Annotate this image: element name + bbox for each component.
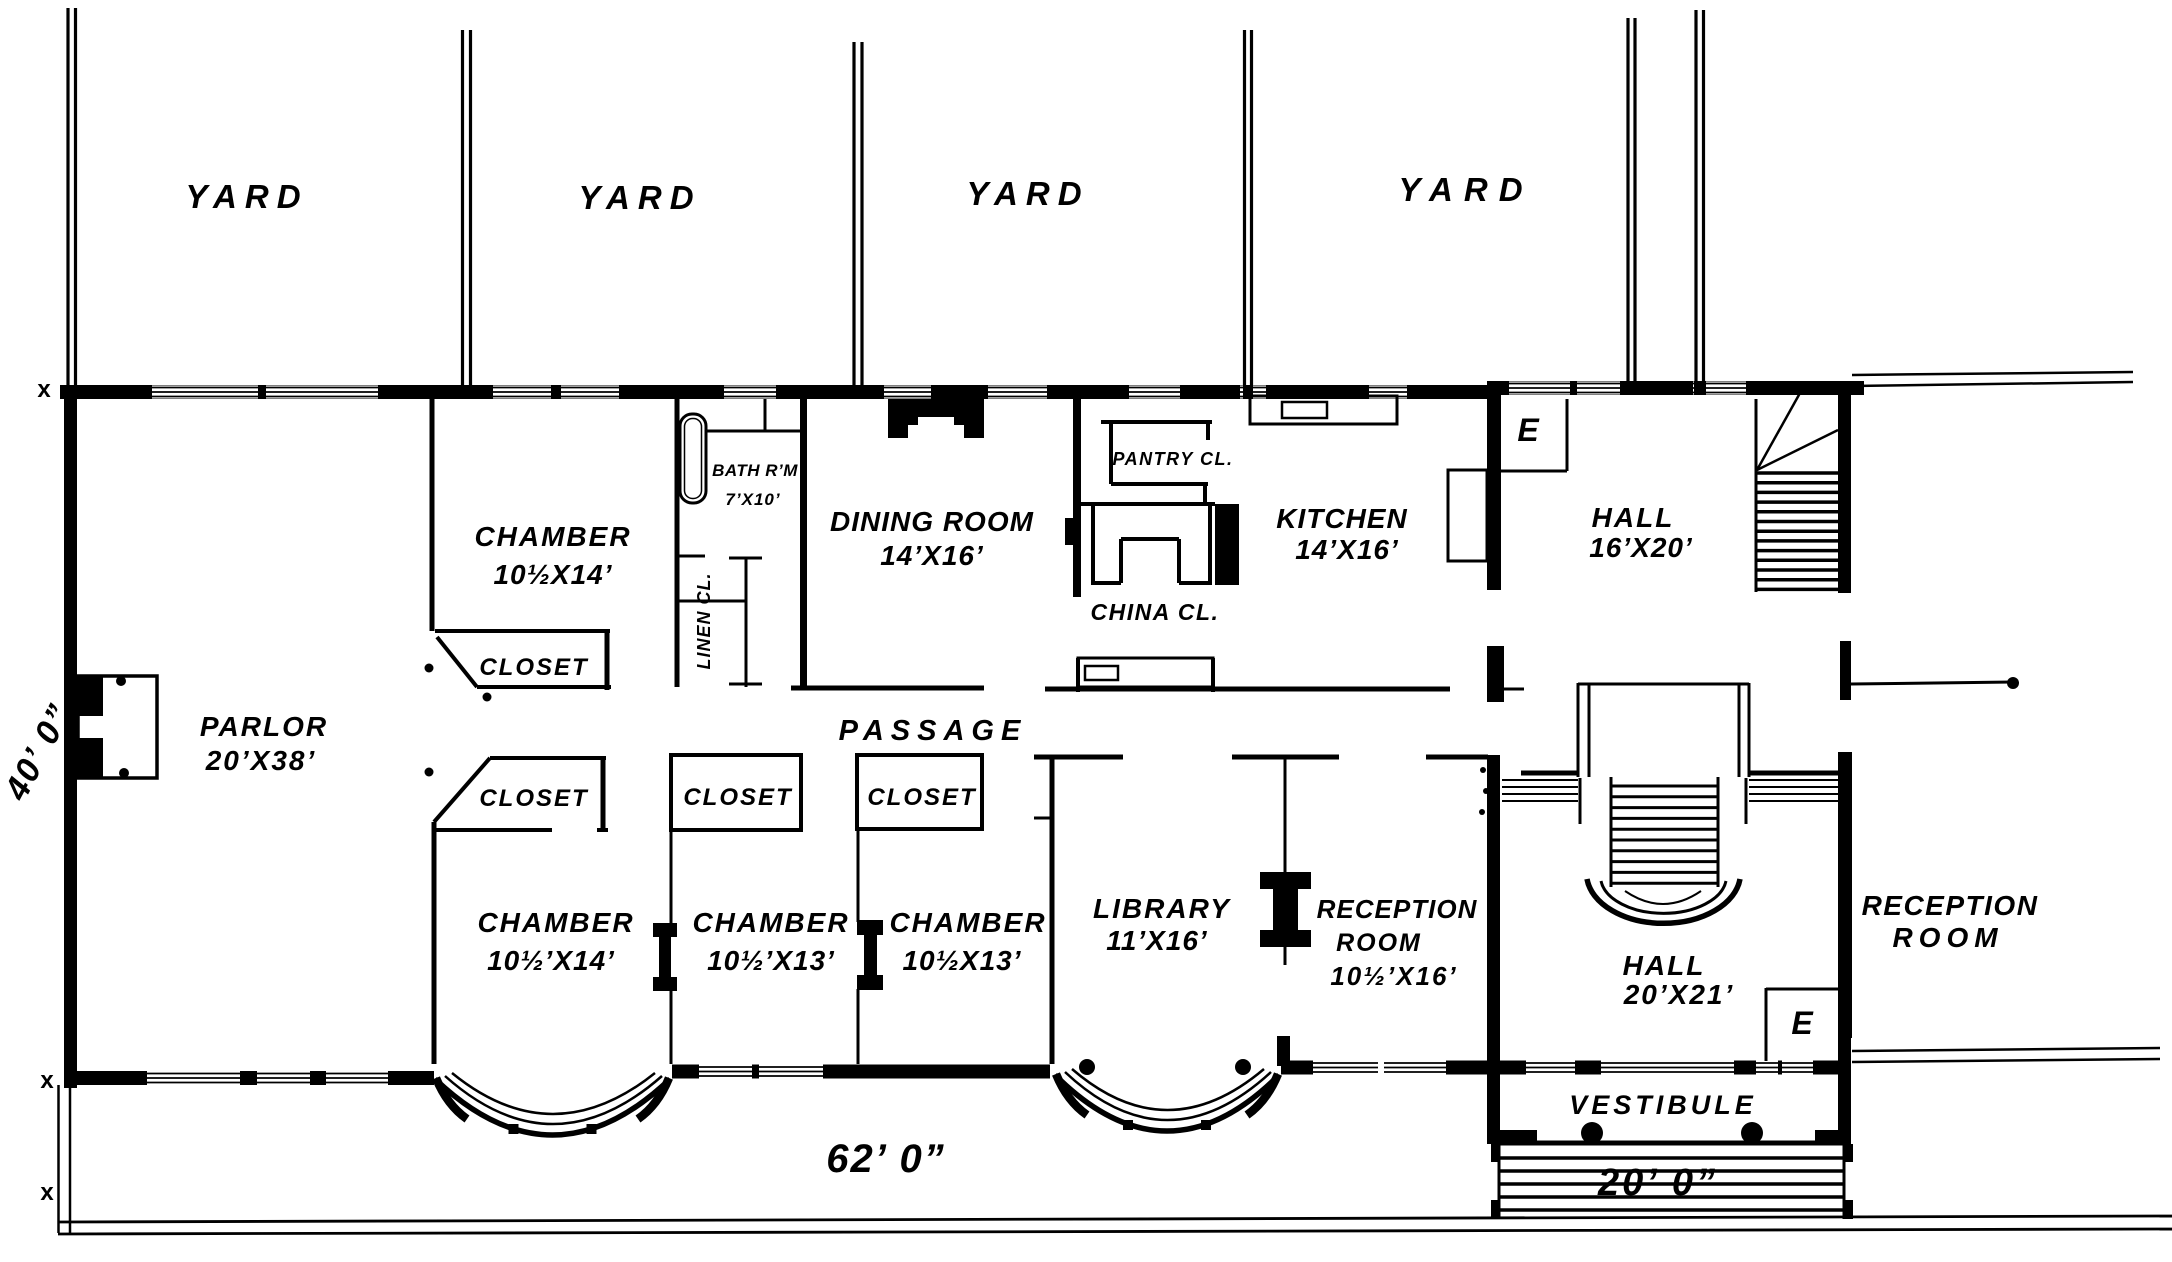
svg-text:10½’X16’: 10½’X16’ — [1330, 961, 1457, 991]
svg-text:YARD: YARD — [578, 179, 701, 216]
svg-text:E: E — [1517, 412, 1540, 448]
svg-text:YARD: YARD — [966, 175, 1089, 212]
svg-text:x: x — [40, 1179, 54, 1206]
svg-text:CHINA CL.: CHINA CL. — [1091, 599, 1220, 625]
svg-text:YARD: YARD — [185, 178, 308, 215]
svg-text:LINEN CL.: LINEN CL. — [694, 573, 714, 670]
svg-text:DINING ROOM: DINING ROOM — [830, 506, 1034, 537]
svg-text:HALL: HALL — [1592, 502, 1675, 533]
svg-text:RECEPTION: RECEPTION — [1317, 894, 1478, 924]
svg-text:CHAMBER: CHAMBER — [692, 907, 849, 938]
svg-text:BATH R’M: BATH R’M — [712, 461, 798, 480]
svg-text:10½’X13’: 10½’X13’ — [707, 945, 835, 976]
svg-text:11’X16’: 11’X16’ — [1106, 925, 1208, 956]
svg-text:LIBRARY: LIBRARY — [1093, 893, 1231, 924]
svg-text:10½X14’: 10½X14’ — [493, 559, 612, 590]
svg-text:PASSAGE: PASSAGE — [839, 715, 1028, 747]
svg-text:CLOSET: CLOSET — [479, 654, 589, 681]
svg-text:KITCHEN: KITCHEN — [1276, 503, 1407, 534]
svg-text:CHAMBER: CHAMBER — [474, 521, 631, 552]
svg-text:CLOSET: CLOSET — [683, 784, 793, 811]
svg-text:62’ 0”: 62’ 0” — [826, 1137, 945, 1181]
svg-text:HALL: HALL — [1623, 950, 1706, 981]
svg-text:20’X38’: 20’X38’ — [205, 745, 317, 776]
svg-text:x: x — [37, 376, 51, 403]
svg-text:RECEPTION: RECEPTION — [1862, 890, 2039, 921]
svg-text:CLOSET: CLOSET — [867, 784, 977, 811]
svg-text:YARD: YARD — [1398, 171, 1533, 208]
svg-text:CHAMBER: CHAMBER — [477, 907, 634, 938]
svg-text:CHAMBER: CHAMBER — [889, 907, 1046, 938]
svg-text:PANTRY CL.: PANTRY CL. — [1112, 449, 1233, 469]
svg-text:CLOSET: CLOSET — [479, 785, 589, 812]
svg-text:ROOM: ROOM — [1336, 929, 1422, 957]
svg-text:10½’X14’: 10½’X14’ — [487, 945, 615, 976]
svg-text:14’X16’: 14’X16’ — [1295, 534, 1399, 565]
svg-text:E: E — [1791, 1005, 1814, 1041]
svg-text:20’X21’: 20’X21’ — [1623, 979, 1735, 1010]
svg-text:16’X20’: 16’X20’ — [1589, 532, 1693, 563]
svg-text:VESTIBULE: VESTIBULE — [1569, 1090, 1757, 1120]
svg-text:ROOM: ROOM — [1892, 922, 2003, 953]
svg-text:PARLOR: PARLOR — [200, 711, 328, 742]
svg-text:14’X16’: 14’X16’ — [880, 540, 984, 571]
svg-text:20’ 0”: 20’ 0” — [1597, 1162, 1718, 1204]
svg-text:7’X10’: 7’X10’ — [725, 490, 780, 509]
svg-text:x: x — [40, 1067, 54, 1094]
svg-text:10½X13’: 10½X13’ — [902, 945, 1021, 976]
